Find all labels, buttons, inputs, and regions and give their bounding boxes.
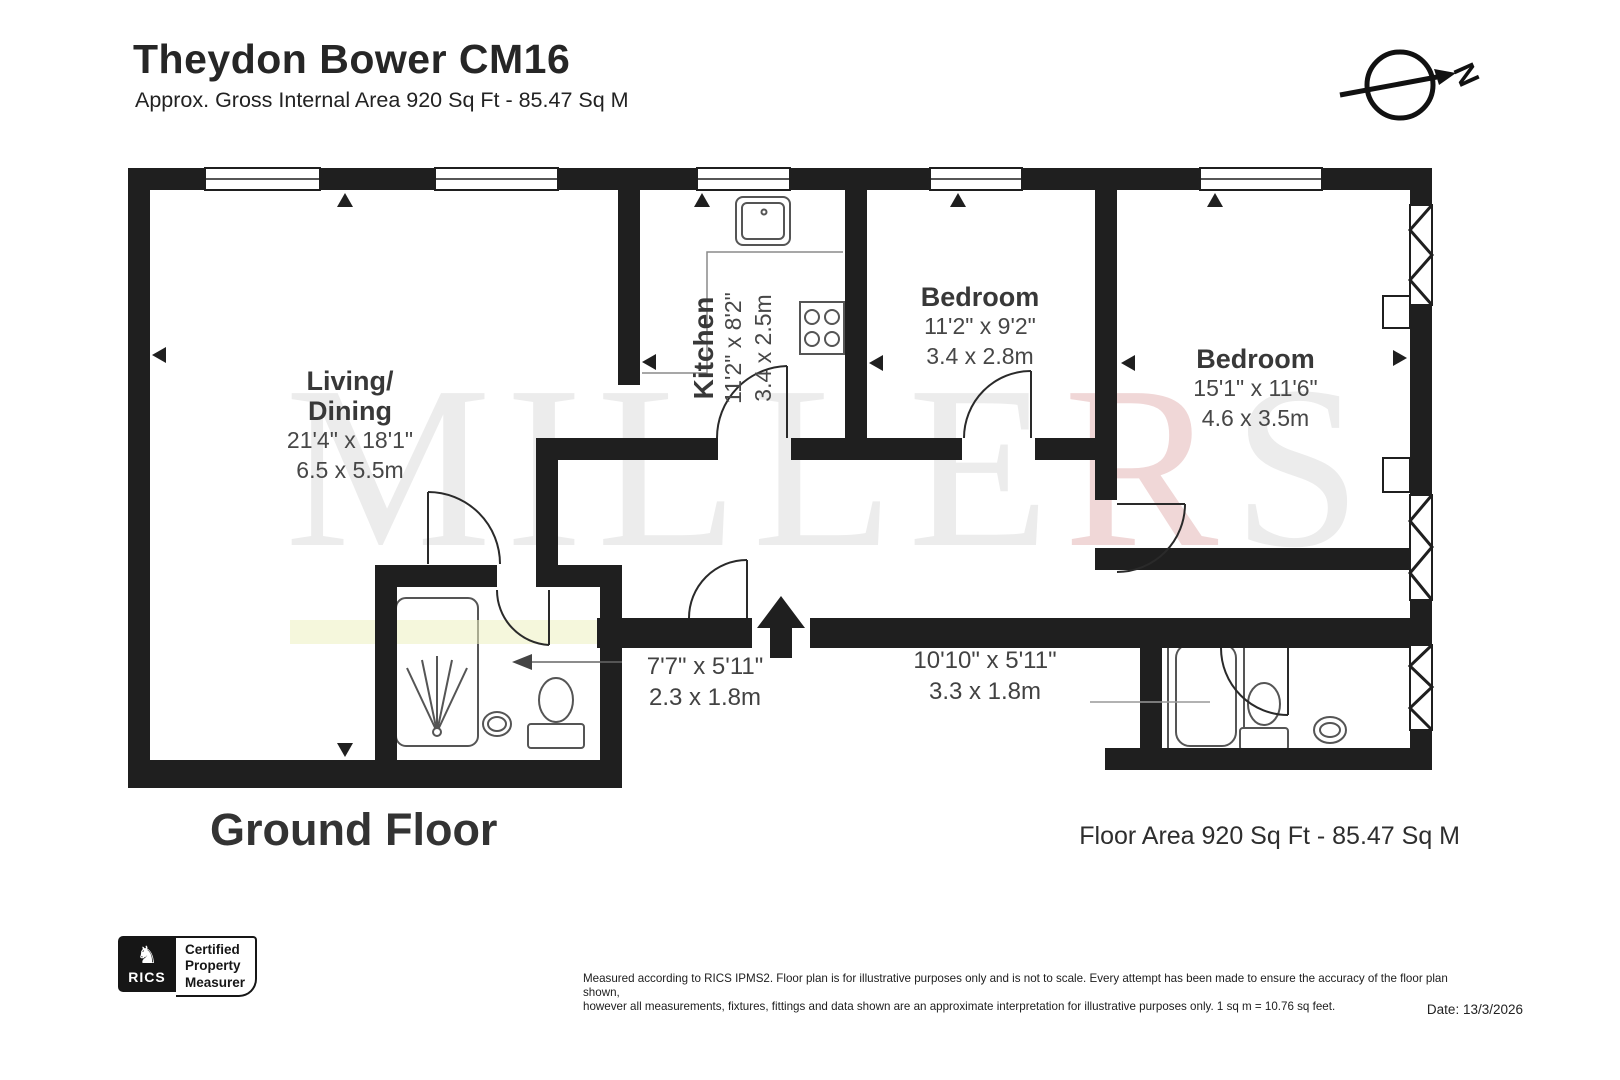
disclaimer-line-2: however all measurements, fixtures, fitt… <box>583 1000 1483 1014</box>
disclaimer-line-1: Measured according to RICS IPMS2. Floor … <box>583 972 1483 1000</box>
badge-line: Property <box>185 958 245 974</box>
bedroom2-label: Bedroom 15'1" x 11'6" 4.6 x 3.5m <box>1148 344 1363 433</box>
living-door <box>428 492 500 564</box>
room-dim-imperial: 10'10" x 5'11" <box>875 646 1095 677</box>
room-dim-metric: 2.3 x 1.8m <box>600 683 810 714</box>
room-name: Bedroom <box>1148 344 1363 374</box>
living-dining-label: Living/ Dining 21'4" x 18'1" 6.5 x 5.5m <box>235 366 465 485</box>
room-dim-imperial: 15'1" x 11'6" <box>1148 374 1363 403</box>
floorplan-drawing: N <box>0 0 1620 1080</box>
room-name: Kitchen <box>688 248 719 448</box>
compass-north-label: N <box>1446 58 1485 91</box>
room-dim-imperial: 7'7" x 5'11" <box>600 652 810 683</box>
disclaimer-text: Measured according to RICS IPMS2. Floor … <box>583 972 1483 1014</box>
shower-basin-icon <box>483 712 511 736</box>
room-dim-metric: 4.6 x 3.5m <box>1148 404 1363 433</box>
room-dim-metric: 6.5 x 5.5m <box>235 456 465 485</box>
certified-property-measurer: Certified Property Measurer <box>176 936 257 997</box>
kitchen-label: Kitchen 11'2" x 8'2" 3.4 x 2.5m <box>688 248 808 448</box>
entrance-arrow-icon <box>757 596 805 658</box>
shower-toilet-icon <box>528 678 584 748</box>
room-dim-imperial: 21'4" x 18'1" <box>235 426 465 455</box>
floorplan-page: Theydon Bower CM16 Approx. Gross Interna… <box>0 0 1620 1080</box>
room-name: Dining <box>235 396 465 426</box>
bedroom1-label: Bedroom 11'2" x 9'2" 3.4 x 2.8m <box>880 282 1080 371</box>
room-dim-metric: 3.4 x 2.8m <box>880 342 1080 371</box>
room-dim-imperial: 11'2" x 9'2" <box>880 312 1080 341</box>
rics-certified-badge: ♞ RICS Certified Property Measurer <box>118 936 257 997</box>
rics-lion-icon: ♞ <box>136 944 158 968</box>
bathroom-toilet-icon <box>1240 683 1288 750</box>
badge-line: Certified <box>185 942 245 958</box>
room-dim-metric: 3.4 x 2.5m <box>749 248 778 448</box>
compass-icon: N <box>1340 52 1485 118</box>
room-dim-imperial: 11'2" x 8'2" <box>719 248 748 448</box>
bathtub-icon <box>1168 636 1244 754</box>
rics-org-name: RICS <box>128 969 165 985</box>
badge-line: Measurer <box>185 975 245 991</box>
room-name: Living/ <box>235 366 465 396</box>
landing-label: 10'10" x 5'11" 3.3 x 1.8m <box>875 646 1095 707</box>
entrance-door <box>689 560 747 618</box>
entrance <box>752 596 810 658</box>
hallway-label: 7'7" x 5'11" 2.3 x 1.8m <box>600 652 810 713</box>
room-dim-metric: 3.3 x 1.8m <box>875 677 1095 708</box>
bedroom1-door <box>964 371 1031 438</box>
room-name: Bedroom <box>880 282 1080 312</box>
bathroom-basin-icon <box>1314 717 1346 743</box>
rics-logo: ♞ RICS <box>118 936 176 992</box>
kitchen-sink-icon <box>736 197 790 245</box>
bathroom-fixtures <box>1168 636 1346 754</box>
